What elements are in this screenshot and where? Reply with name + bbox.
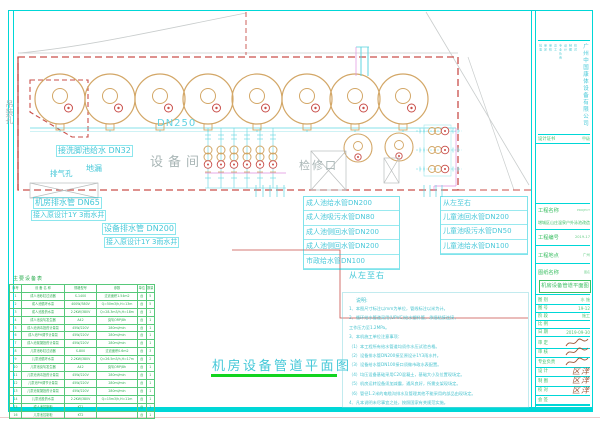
- table-cell: 成人池砂缸过滤器: [22, 292, 65, 300]
- approval-column: 审定: [544, 44, 548, 131]
- attr-value: 水 施: [581, 297, 591, 303]
- pump-valve-dot: [357, 156, 359, 158]
- table-cell: 过滤面积1.54m2: [97, 292, 138, 300]
- table-cell: KT2: [65, 411, 97, 419]
- table-header-cell: 参数: [97, 285, 138, 293]
- table-cell: 1: [146, 387, 155, 395]
- table-cell: 儿童池絮凝投药计量泵: [22, 387, 65, 395]
- signature-row: 审 定: [538, 338, 590, 348]
- filter-tank: [232, 74, 282, 124]
- table-cell: 儿童池砂缸过滤器: [22, 348, 65, 356]
- adult-pipe-item: 成人池侧回水管DN200: [304, 240, 399, 254]
- signature-label: 专业负责: [538, 359, 555, 365]
- table-cell: 台: [138, 371, 147, 379]
- table-cell: 儿童池臭氧发生器: [22, 364, 65, 372]
- approval-column: 校对: [574, 44, 578, 131]
- signature-row: 审 核: [538, 348, 590, 358]
- note-line: （2）设备排水管DN200接至原设计1Y3雨水井。: [349, 351, 528, 360]
- table-cell: 1: [146, 379, 155, 387]
- adult-pipe-item: 市政给水管DN100: [304, 255, 399, 269]
- note-line: 工作压力至1.2MPa。: [349, 323, 528, 332]
- equip-drain-dest-label: 接入原设计1Y 3雨水井: [104, 237, 179, 248]
- note-line: （1）本工程所有给水管道均须作水压试验合格。: [349, 342, 528, 351]
- table-cell: 14: [10, 395, 22, 403]
- row-valve-dot: [444, 168, 446, 170]
- tank-valve-dot: [215, 107, 217, 109]
- floor-drain-label: 地漏: [86, 163, 102, 174]
- table-cell: 13: [10, 387, 22, 395]
- cert-value: 甲级: [582, 136, 590, 142]
- dwg-name-tag: 图名: [584, 270, 590, 274]
- table-cell: 11: [10, 371, 22, 379]
- table-cell: 台: [138, 300, 147, 308]
- table-header-cell: 设 备 名 称: [22, 285, 65, 293]
- attr-row: 比 例: [538, 320, 590, 328]
- table-row: 5成人池消毒投药计量泵45W/220V280ml/min台1: [10, 324, 155, 332]
- filter-tank: [85, 74, 135, 124]
- table-header-cell: 单位: [138, 285, 147, 293]
- tb-sep6: [535, 294, 590, 295]
- table-cell: 1: [146, 403, 155, 411]
- table-cell: 400W/380V: [65, 300, 97, 308]
- dwg-name-value: 机房设备管道平面图: [539, 280, 591, 293]
- table-cell: 6: [10, 332, 22, 340]
- attr-label: 图 别: [538, 297, 548, 303]
- pump-inlet: [354, 142, 363, 151]
- table-cell: 2.2KW/380V: [65, 356, 97, 364]
- adult-pipe-item: 成人池侧回水管DN200: [304, 226, 399, 240]
- pump-inlet: [395, 141, 404, 150]
- table-cell: 280ml/min: [97, 387, 138, 395]
- signature-label: 会 签: [538, 397, 548, 403]
- table-cell: 12: [10, 379, 22, 387]
- child-pipe-item: 儿童池吸污水管DN50: [441, 225, 527, 239]
- attr-label: 图 号: [538, 305, 548, 311]
- child-pipe-item: 儿童池回水管DN200: [441, 211, 527, 225]
- table-cell: 45W/220V: [65, 371, 97, 379]
- table-cell: 9: [10, 356, 22, 364]
- table-row: 16儿童池控制柜KT2台1: [10, 411, 155, 419]
- project-name-tag: PROJECT: [577, 208, 590, 212]
- table-cell: 16: [10, 411, 22, 419]
- equipment-room-label: 设备间: [150, 151, 204, 170]
- tb-sep4: [535, 245, 590, 246]
- table-cell: KT1: [65, 403, 97, 411]
- table-cell: 儿童池投药水泵: [22, 395, 65, 403]
- table-cell: Q=50m3/h,H=13m: [97, 300, 138, 308]
- attr-row: 日 期2019-09-30: [538, 328, 590, 336]
- table-cell: 成人池循环水泵: [22, 300, 65, 308]
- attr-label: 阶 段: [538, 313, 548, 319]
- diagonal-line: [468, 57, 514, 190]
- tank-inlet: [53, 89, 68, 104]
- table-cell: 台: [138, 292, 147, 300]
- note-line: （5）机房运转设备须加减震，通风良好，所需支架现场定。: [349, 379, 528, 388]
- table-cell: Q=26.5m3/h,H=17m: [97, 356, 138, 364]
- adult-pipe-item: 成人池吸污水管DN80: [304, 211, 399, 225]
- table-cell: 280ml/min: [97, 371, 138, 379]
- tank-inlet: [201, 89, 216, 104]
- table-cell: 台: [138, 379, 147, 387]
- table-cell: 15: [10, 403, 22, 411]
- pump-valve-dot: [398, 155, 400, 157]
- table-row: 10儿童池臭氧发生器A42臭氧ORP/8h台1: [10, 364, 155, 372]
- table-cell: 7: [10, 340, 22, 348]
- table-header-cell: 数量: [146, 285, 155, 293]
- child-pipe-item: 儿童池给水管DN100: [441, 240, 527, 254]
- equip-drain-label: 设备排水管 DN200: [102, 223, 176, 235]
- row-valve-dot: [444, 149, 446, 151]
- table-row: 11儿童池消毒投药计量泵45W/220V280ml/min台1: [10, 371, 155, 379]
- tank-valve-dot: [314, 107, 316, 109]
- lifting-hole-label: 吊装孔: [4, 100, 15, 124]
- tb-sep5: [535, 263, 590, 264]
- table-cell: 1: [146, 340, 155, 348]
- tb-sep7: [535, 404, 590, 405]
- company-block: 批准审定审核总工专业负责设计制图校对 广州中国康体设备有限公司: [538, 40, 590, 135]
- table-cell: 儿童池控制柜: [22, 411, 65, 419]
- tank-valve-dot: [167, 107, 169, 109]
- approval-column: 制图: [569, 44, 573, 131]
- filter-tank: [183, 74, 233, 124]
- table-cell: 1: [146, 411, 155, 419]
- tank-inlet: [348, 89, 363, 104]
- table-cell: 台: [138, 348, 147, 356]
- location-label: 工程地点: [538, 252, 559, 259]
- table-cell: 台: [138, 395, 147, 403]
- child-pool-pipe-list: 从左至右 儿童池回水管DN200儿童池吸污水管DN50儿童池给水管DN100: [440, 196, 528, 255]
- tb-sep1: [535, 143, 590, 144]
- equipment-table: 序号设 备 名 称规格型号参数单位数量1成人池砂缸过滤器S-1400过滤面积1.…: [9, 284, 155, 419]
- manifold-valve-dot: [259, 164, 261, 166]
- table-cell: 台: [138, 340, 147, 348]
- note-line: （4）均压设备基础采用C20混凝土，基础大小及位置现场定。: [349, 370, 528, 379]
- note-line: （6）管径1.2米的电缆沟排水及管理其他不能采用的部品由现场定。: [349, 389, 528, 398]
- table-cell: 45W/220V: [65, 340, 97, 348]
- table-header-row: 序号设 备 名 称规格型号参数单位数量: [10, 285, 155, 293]
- tank-inlet: [396, 89, 411, 104]
- table-cell: 1: [146, 308, 155, 316]
- tank-valve-dot: [410, 107, 412, 109]
- table-cell: Q=28.3m3/h,H=18m: [97, 308, 138, 316]
- notes-title: 说明:: [356, 297, 528, 304]
- table-cell: A42: [65, 316, 97, 324]
- table-row: 13儿童池絮凝投药计量泵45W/220V280ml/min台1: [10, 387, 155, 395]
- attr-row: 图 号19-12: [538, 304, 590, 312]
- room-drain-dest-label: 接入原设计1Y 3雨水井: [31, 210, 106, 221]
- table-row: 2成人池循环水泵400W/380VQ=50m3/h,H=13m台5: [10, 300, 155, 308]
- table-cell: 5: [10, 324, 22, 332]
- plan-title: 机房设备管道平面图: [212, 355, 352, 374]
- tank-valve-dot: [117, 107, 119, 109]
- tank-outlet-fitting: [56, 124, 64, 130]
- table-cell: 45W/220V: [65, 379, 97, 387]
- table-cell: 台: [138, 403, 147, 411]
- table-cell: 台: [138, 411, 147, 419]
- project-name-value: 增城区山庄温泉户外泳池改造: [538, 218, 590, 227]
- table-cell: 10: [10, 364, 22, 372]
- attr-value: 19-12: [578, 306, 590, 311]
- table-cell: [97, 403, 138, 411]
- table-cell: 成人池PH调节计量泵: [22, 332, 65, 340]
- project-no-row: 工程编号 2019-17: [538, 232, 590, 242]
- table-row: 7成人池絮凝投药计量泵45W/220V280ml/min台1: [10, 340, 155, 348]
- tank-outlet-fitting: [399, 124, 407, 130]
- table-cell: 2: [10, 300, 22, 308]
- table-cell: 臭氧ORP/8h: [97, 316, 138, 324]
- handwritten-signature: [564, 338, 590, 348]
- tb-sep3: [535, 229, 590, 230]
- tank-inlet: [300, 89, 315, 104]
- filter-tank: [330, 74, 380, 124]
- project-name-row: 工程名称 PROJECT: [538, 205, 590, 215]
- access-opening-label: 检修口: [299, 157, 338, 173]
- approval-column: 总工: [554, 44, 558, 131]
- table-cell: 1: [146, 332, 155, 340]
- table-cell: 台: [138, 356, 147, 364]
- table-cell: 台: [138, 364, 147, 372]
- footbath-supply-label: 接洗脚池给水 DN32: [56, 145, 133, 157]
- filter-tank: [135, 74, 185, 124]
- tank-outlet-fitting: [303, 124, 311, 130]
- tank-valve-dot: [67, 107, 69, 109]
- signature-label: 审 核: [538, 349, 548, 355]
- table-row: 14儿童池投药水泵2.2KW/380VQ=15m3/h,H=11m台1: [10, 395, 155, 403]
- table-cell: 臭氧ORP/8h: [97, 364, 138, 372]
- project-no-value: 2019-17: [575, 235, 590, 239]
- tank-inlet: [250, 89, 265, 104]
- table-cell: 1: [146, 395, 155, 403]
- note-line: （3）设备给水管DN100接口须做市政水表配置。: [349, 360, 528, 369]
- table-cell: 儿童池消毒投药计量泵: [22, 371, 65, 379]
- handwritten-signature: [564, 347, 590, 357]
- table-cell: A42: [65, 364, 97, 372]
- table-cell: 儿童池PH调节计量泵: [22, 379, 65, 387]
- note-line: 3、本机施工单位注意事项：: [349, 332, 528, 341]
- attr-label: 比 例: [538, 321, 548, 327]
- table-cell: 成人池絮凝投药计量泵: [22, 340, 65, 348]
- approval-column: 设计: [564, 44, 568, 131]
- table-cell: Q=15m3/h,H=11m: [97, 395, 138, 403]
- manifold-valve-dot: [272, 164, 274, 166]
- table-cell: 5: [146, 300, 155, 308]
- table-cell: 1: [146, 316, 155, 324]
- row-valve-dot: [444, 130, 446, 132]
- table-cell: 4: [10, 316, 22, 324]
- tank-outlet-fitting: [351, 124, 359, 130]
- company-name: 广州中国康体设备有限公司: [581, 43, 589, 127]
- manifold-valve-dot: [246, 164, 248, 166]
- project-no-label: 工程编号: [538, 234, 559, 241]
- filter-tank: [282, 74, 332, 124]
- table-cell: 5: [146, 292, 155, 300]
- cert-label: 设计证书: [538, 136, 555, 142]
- table-cell: 280ml/min: [97, 379, 138, 387]
- table-cell: 8: [10, 348, 22, 356]
- table-row: 8儿童池砂缸过滤器S-800过滤面积0.6m2台3: [10, 348, 155, 356]
- signature-label: 设 计: [538, 368, 548, 374]
- table-cell: 45W/220V: [65, 324, 97, 332]
- signature-label: 制 图: [538, 378, 548, 384]
- signature-label: 校 对: [538, 387, 548, 393]
- vent-hole-label: 排气孔: [50, 168, 73, 179]
- cert-row: 设计证书 甲级: [538, 134, 590, 143]
- tank-inlet: [103, 89, 118, 104]
- direction-note-right: 从左至右: [441, 197, 527, 211]
- location-row: 工程地点 广州: [538, 250, 590, 260]
- table-cell: 45W/220V: [65, 332, 97, 340]
- note-line: 2、循环给水管道采用(UPVC)给水塑料管，承插粘接连接，: [349, 313, 528, 322]
- location-value: 广州: [583, 253, 590, 258]
- table-cell: 280ml/min: [97, 340, 138, 348]
- dwg-name-label: 图纸名称: [538, 269, 559, 276]
- table-cell: 台: [138, 324, 147, 332]
- table-header-cell: 规格型号: [65, 285, 97, 293]
- dwg-name-row: 图纸名称 图名: [538, 267, 590, 277]
- table-row: 1成人池砂缸过滤器S-1400过滤面积1.54m2台5: [10, 292, 155, 300]
- table-cell: 1: [146, 364, 155, 372]
- table-cell: 2.2KW/380V: [65, 308, 97, 316]
- table-cell: 280ml/min: [97, 324, 138, 332]
- signature-row: 校 对区洋: [538, 386, 590, 396]
- attr-row: 阶 段施工: [538, 312, 590, 320]
- table-cell: 3: [10, 308, 22, 316]
- manifold-valve-dot: [220, 164, 222, 166]
- attr-value: 施工: [582, 313, 590, 319]
- adult-pipe-item: 成人池给水管DN200: [304, 197, 399, 211]
- table-cell: 成人池投药水泵: [22, 308, 65, 316]
- tank-outlet-fitting: [106, 124, 114, 130]
- table-row: 4成人池臭氧发生器A42臭氧ORP/8h台1: [10, 316, 155, 324]
- table-cell: 成人池臭氧发生器: [22, 316, 65, 324]
- building-outline-curve: [20, 13, 246, 53]
- table-cell: 1: [146, 371, 155, 379]
- notes-block: 说明: 1、本图尺寸标注以mm为单位，管线标注以米为计。2、循环给水管道采用(U…: [342, 292, 529, 408]
- table-row: 9儿童池循环水泵2.2KW/380VQ=26.5m3/h,H=17m台2: [10, 356, 155, 364]
- table-cell: 成人池控制柜: [22, 403, 65, 411]
- direction-note-mid: 从左至右: [349, 270, 385, 281]
- adult-pool-pipe-list: 成人池给水管DN200成人池吸污水管DN80成人池侧回水管DN200成人池侧回水…: [303, 196, 400, 270]
- table-cell: 1: [10, 292, 22, 300]
- main-pipe-dn250-label: DN250: [157, 118, 196, 129]
- table-cell: 台: [138, 332, 147, 340]
- plan-title-underline: [211, 374, 337, 377]
- note-line: 1、本图尺寸标注以mm为单位，管线标注以米为计。: [349, 304, 528, 313]
- attr-row: 图 别水 施: [538, 296, 590, 304]
- filter-tank: [378, 74, 428, 124]
- filter-tank: [35, 74, 85, 124]
- project-name-label: 工程名称: [538, 207, 559, 214]
- table-cell: S-1400: [65, 292, 97, 300]
- room-drain-label: 机房排水管 DN65: [33, 197, 102, 209]
- table-cell: [97, 411, 138, 419]
- attr-label: 日 期: [538, 329, 548, 335]
- tank-inlet: [153, 89, 168, 104]
- table-row: 12儿童池PH调节计量泵45W/220V280ml/min台1: [10, 379, 155, 387]
- table-cell: 成人池消毒投药计量泵: [22, 324, 65, 332]
- table-cell: 3: [146, 348, 155, 356]
- equipment-table-title: 主要设备表: [13, 275, 43, 282]
- tb-sep2: [535, 203, 590, 204]
- signature-label: 审 定: [538, 340, 548, 346]
- table-cell: 1: [146, 324, 155, 332]
- table-cell: 280ml/min: [97, 332, 138, 340]
- note-line: 4、凡本说明未尽事宜之处，按照国家有关规范实施。: [349, 398, 528, 407]
- table-row: 15成人池控制柜KT1台1: [10, 403, 155, 411]
- manifold-valve-dot: [233, 164, 235, 166]
- table-header-cell: 序号: [10, 285, 22, 293]
- diagonal-line: [426, 12, 529, 185]
- table-row: 6成人池PH调节计量泵45W/220V280ml/min台1: [10, 332, 155, 340]
- table-cell: 2.2KW/380V: [65, 395, 97, 403]
- table-cell: 2: [146, 356, 155, 364]
- table-cell: 台: [138, 387, 147, 395]
- table-cell: 45W/220V: [65, 387, 97, 395]
- tank-valve-dot: [264, 107, 266, 109]
- manifold-valve-dot: [207, 164, 209, 166]
- table-cell: S-800: [65, 348, 97, 356]
- tank-valve-dot: [362, 107, 364, 109]
- approval-column: 批准: [539, 44, 543, 131]
- table-cell: 台: [138, 316, 147, 324]
- table-row: 3成人池投药水泵2.2KW/380VQ=28.3m3/h,H=18m台1: [10, 308, 155, 316]
- attr-value: 2019-09-30: [566, 330, 590, 335]
- table-cell: 台: [138, 308, 147, 316]
- approval-column: 审核: [549, 44, 553, 131]
- table-cell: 过滤面积0.6m2: [97, 348, 138, 356]
- approval-column: 专业负责: [559, 44, 563, 131]
- table-cell: 儿童池循环水泵: [22, 356, 65, 364]
